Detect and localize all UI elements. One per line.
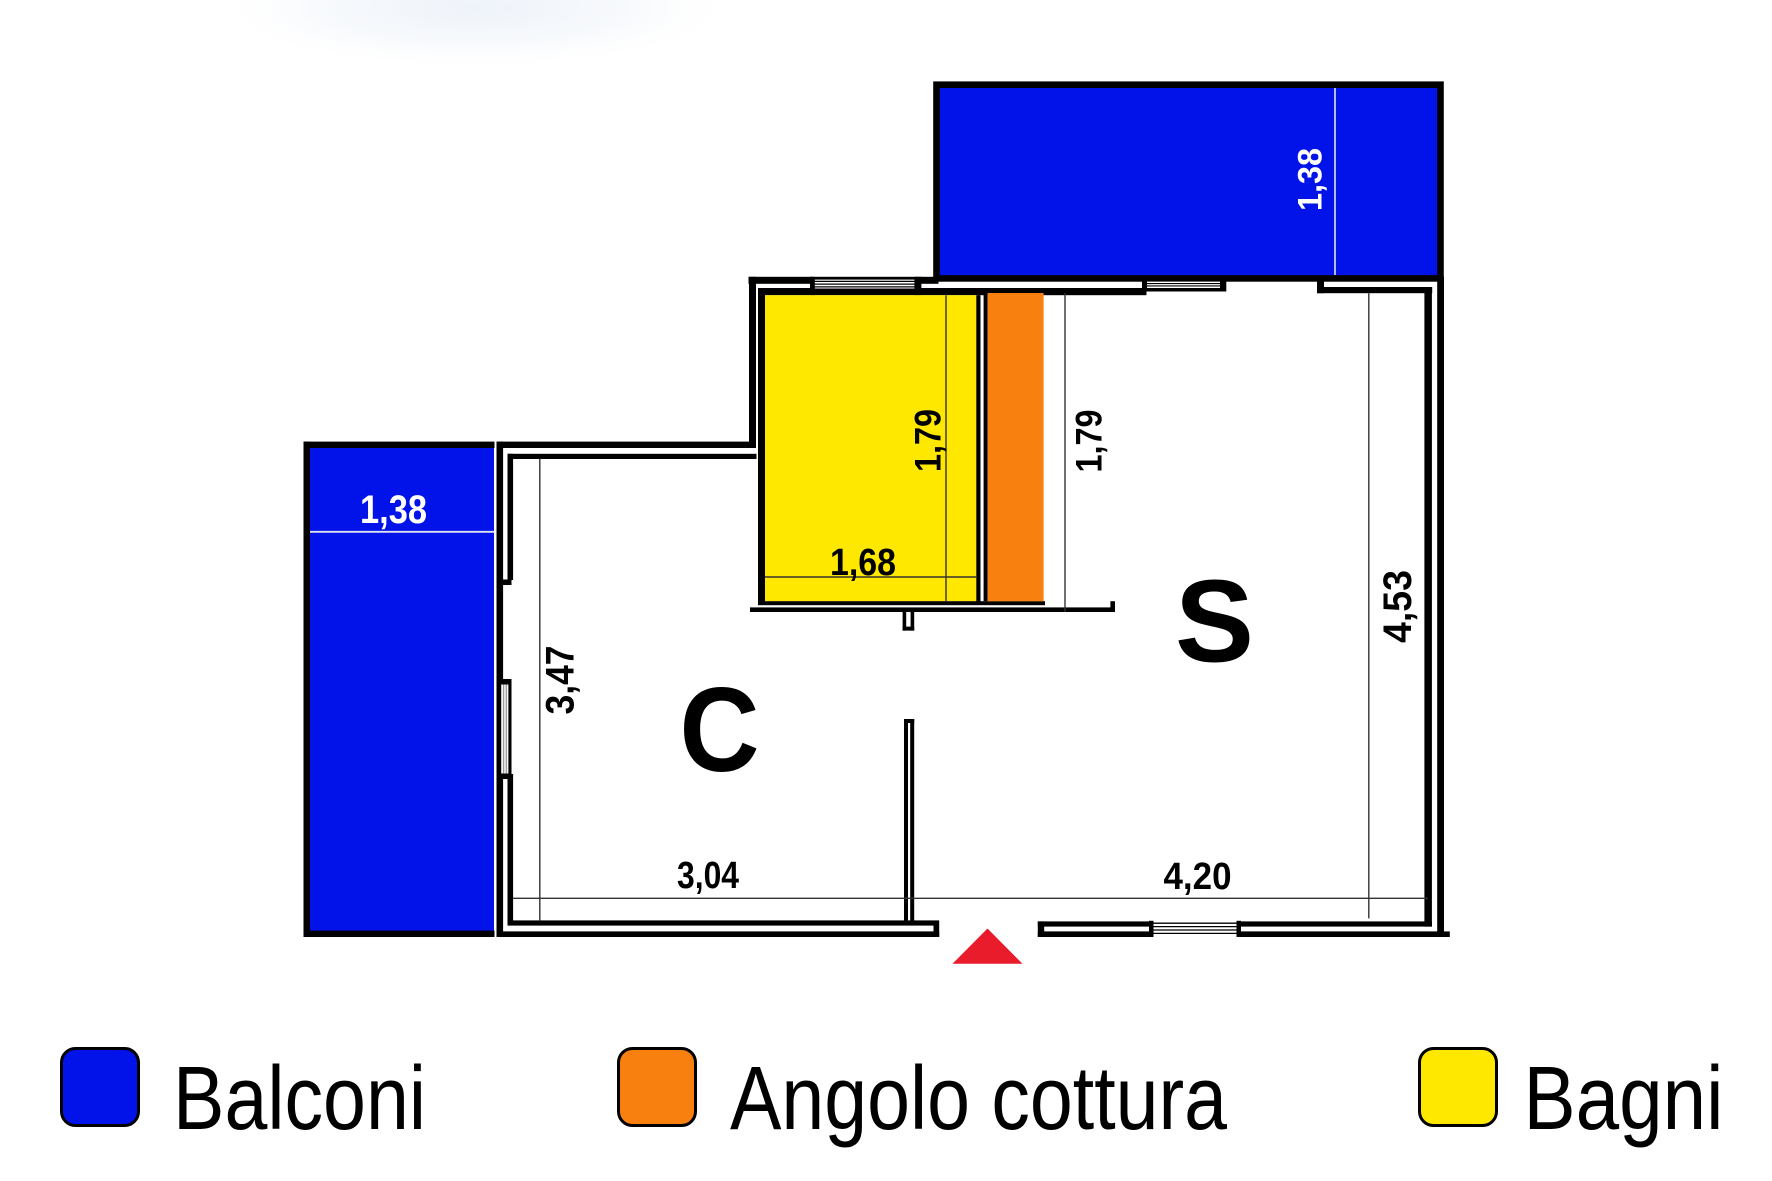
svg-text:3,47: 3,47 xyxy=(539,646,583,715)
svg-text:1,79: 1,79 xyxy=(908,409,949,472)
svg-text:1,79: 1,79 xyxy=(1069,410,1110,473)
svg-text:3,04: 3,04 xyxy=(677,855,739,897)
svg-text:Balconi: Balconi xyxy=(173,1049,426,1149)
svg-text:4,20: 4,20 xyxy=(1164,856,1232,898)
svg-text:1,68: 1,68 xyxy=(830,542,896,584)
svg-text:1,38: 1,38 xyxy=(1292,148,1330,211)
svg-text:C: C xyxy=(680,663,760,797)
svg-text:S: S xyxy=(1175,556,1254,687)
svg-text:4,53: 4,53 xyxy=(1376,570,1420,643)
svg-text:Bagni: Bagni xyxy=(1524,1049,1724,1149)
svg-text:Angolo cottura: Angolo cottura xyxy=(730,1049,1228,1149)
svg-text:1,38: 1,38 xyxy=(360,488,427,532)
